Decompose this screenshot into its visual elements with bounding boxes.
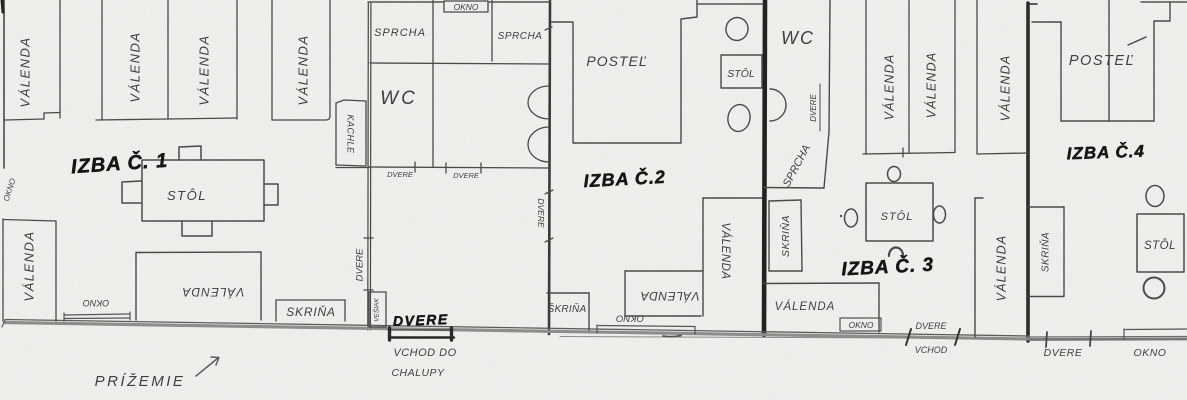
svg-text:VÁLENDA: VÁLENDA	[21, 230, 36, 301]
svg-text:OKNO: OKNO	[83, 298, 110, 308]
svg-text:STÔL: STÔL	[1144, 239, 1176, 252]
svg-text:VEŠIAK: VEŠIAK	[372, 298, 381, 322]
svg-text:VÁLENDA: VÁLENDA	[196, 34, 211, 105]
svg-text:VÁLENDA: VÁLENDA	[181, 285, 244, 300]
svg-text:KACHLE: KACHLE	[346, 114, 356, 154]
svg-text:SKRIŇA: SKRIŇA	[286, 304, 335, 319]
svg-text:STÔL: STÔL	[727, 67, 755, 80]
svg-text:POSTEĽ: POSTEĽ	[1069, 53, 1135, 69]
svg-text:OKNO: OKNO	[1134, 347, 1167, 359]
svg-text:VÁLENDA: VÁLENDA	[997, 55, 1012, 122]
svg-text:DVERE: DVERE	[355, 248, 366, 281]
svg-text:VCHOD DO: VCHOD DO	[393, 347, 456, 359]
svg-text:DVERE: DVERE	[1044, 347, 1083, 359]
svg-text:WC: WC	[781, 28, 815, 48]
svg-text:VCHOD: VCHOD	[915, 345, 948, 355]
svg-text:VÁLENDA: VÁLENDA	[993, 235, 1008, 302]
svg-text:OKNO: OKNO	[615, 312, 644, 323]
svg-text:IZBA Č.2: IZBA Č.2	[583, 166, 666, 191]
svg-text:STÔL: STÔL	[167, 188, 207, 203]
svg-text:ŠKRIŇA: ŠKRIŇA	[547, 302, 586, 315]
svg-text:DVERE: DVERE	[809, 94, 818, 122]
svg-text:PRÍŽEMIE: PRÍŽEMIE	[95, 373, 186, 390]
svg-text:POSTEĽ: POSTEĽ	[586, 53, 647, 69]
svg-text:DVERE: DVERE	[453, 171, 480, 180]
svg-text:VÁLENDA: VÁLENDA	[719, 222, 732, 279]
svg-text:VÁLENDA: VÁLENDA	[295, 34, 310, 105]
svg-text:VÁLENDA: VÁLENDA	[923, 52, 938, 119]
svg-text:SPRCHA: SPRCHA	[498, 31, 543, 42]
svg-text:SPRCHA: SPRCHA	[374, 27, 426, 39]
svg-text:IZBA Č.4: IZBA Č.4	[1066, 142, 1145, 164]
svg-text:SKRIŇA: SKRIŇA	[1039, 232, 1052, 272]
svg-text:DVERE: DVERE	[536, 198, 546, 228]
svg-text:STÔL: STÔL	[881, 210, 914, 223]
svg-text:VÁLENDA: VÁLENDA	[640, 289, 700, 304]
svg-text:VÁLENDA: VÁLENDA	[17, 36, 32, 107]
svg-text:VÁLENDA: VÁLENDA	[127, 31, 142, 102]
svg-text:DVERE: DVERE	[393, 311, 449, 329]
svg-text:SKRIŇA: SKRIŇA	[779, 215, 792, 257]
svg-text:DVERE: DVERE	[915, 321, 947, 331]
svg-text:WC: WC	[380, 88, 418, 109]
svg-text:DVERE: DVERE	[387, 170, 414, 179]
svg-text:VÁLENDA: VÁLENDA	[775, 300, 836, 313]
svg-text:OKNO: OKNO	[848, 320, 873, 330]
svg-text:OKNO: OKNO	[453, 2, 478, 12]
svg-text:CHALUPY: CHALUPY	[391, 367, 445, 379]
svg-text:VÁLENDA: VÁLENDA	[881, 54, 896, 121]
